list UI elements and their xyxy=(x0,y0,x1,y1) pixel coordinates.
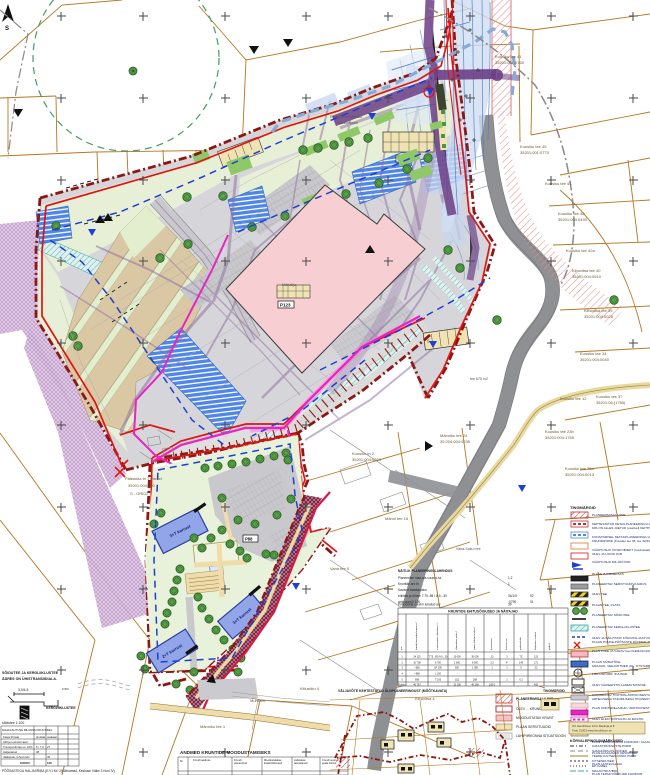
svg-text:1 055: 1 055 xyxy=(472,667,479,670)
svg-text:KÕRVALEPINGUD/MÄRKUSED: KÕRVALEPINGUD/MÄRKUSED xyxy=(570,738,623,743)
svg-text:Kuusiku tee 34: Kuusiku tee 34 xyxy=(580,351,607,356)
svg-text:parkimiskohti: parkimiskohti xyxy=(519,637,522,650)
svg-text:SÕIDUTEE JA KERGLIIKLUSTEE: SÕIDUTEE JA KERGLIIKLUSTEE xyxy=(2,670,59,675)
svg-text:LP 100: LP 100 xyxy=(434,667,442,670)
svg-text:tee 675 m2: tee 675 m2 xyxy=(470,377,488,381)
svg-text:maakasutuse sihtotstarve %: maakasutuse sihtotstarve % xyxy=(436,623,439,650)
svg-text:KRAAV/TRUUBID: KRAAV/TRUUBID xyxy=(592,769,618,773)
svg-text:Kuusiku tee 12: Kuusiku tee 12 xyxy=(560,396,587,401)
svg-text:PLANEERIMISALA PIIR: PLANEERIMISALA PIIR xyxy=(592,513,626,517)
svg-text:Kuusiku tee 76a: Kuusiku tee 76a xyxy=(565,466,594,471)
svg-text:Prihoonete suurim lubatud arv: Prihoonete suurim lubatud arv xyxy=(398,603,441,607)
svg-text:1: 1 xyxy=(508,582,510,586)
svg-text:PLANEERITAV SERVITUUDIVAJADUS: PLANEERITAV SERVITUUDIVAJADUS xyxy=(592,582,646,586)
svg-text:tasutatavad: tasutatavad xyxy=(294,761,308,765)
svg-text:MIS ON ALLES JÄETUD (osaliselt: MIS ON ALLES JÄETUD (osaliselt KEHTIV) xyxy=(592,526,650,530)
svg-text:1,2: 1,2 xyxy=(508,576,513,580)
svg-text:171: 171 xyxy=(534,662,539,665)
svg-text:30 000: 30 000 xyxy=(471,656,479,659)
svg-text:8 900: 8 900 xyxy=(472,662,479,665)
svg-text:Kokku: Kokku xyxy=(399,684,406,687)
svg-text:13 600: 13 600 xyxy=(453,656,461,659)
svg-text:Kuusiku tee 3?: Kuusiku tee 3? xyxy=(596,394,623,399)
svg-text:Killustiku 4: Killustiku 4 xyxy=(300,686,320,691)
svg-text:PLAN PIIRE JA VÄRAV (ka OLEMAS: PLAN PIIRE JA VÄRAV (ka OLEMASOLEV) xyxy=(592,649,650,653)
svg-text:Kuusiku tee 44: Kuusiku tee 44 xyxy=(545,181,572,186)
svg-text:39: 39 xyxy=(508,603,512,607)
svg-text:Nr: Nr xyxy=(180,759,183,763)
svg-text:Krundi aadress: Krundi aadress xyxy=(193,758,211,762)
svg-text:35201:004:0263: 35201:004:0263 xyxy=(352,457,382,462)
svg-text:ehitusalune pind m²: ehitusalune pind m² xyxy=(455,631,458,650)
svg-text:Kuusiku tee 42a: Kuusiku tee 42a xyxy=(566,248,595,253)
svg-text:PLAAN SERVITUUDID: PLAAN SERVITUUDID xyxy=(516,725,552,729)
svg-text:OLEV VÄIKEEHITIS LAMMUTATAKSE: OLEV VÄIKEEHITIS LAMMUTATAKSE xyxy=(592,683,646,687)
svg-text:Kuusiku tee 23b: Kuusiku tee 23b xyxy=(545,429,574,434)
svg-text:OLEV ELEKTRIÕHULIIN JA MASTID: OLEV ELEKTRIÕHULIIN JA MASTID xyxy=(592,716,644,721)
svg-text:peale liitmist: peale liitmist xyxy=(322,761,337,765)
svg-text:OÜ Hendrikson & Ko Raekoja pl: OÜ Hendrikson & Ko Raekoja pl 8 xyxy=(572,724,615,728)
svg-text:38: 38 xyxy=(36,750,40,754)
svg-text:PÕÕSASTEGA HALJASRIBA (E:V1 M:: PÕÕSASTEGA HALJASRIBA (E:V1 M:I 2)hõlmam… xyxy=(2,768,115,773)
svg-text:35201:004:0025: 35201:004:0025 xyxy=(584,314,614,319)
svg-text:35201:06:(1765): 35201:06:(1765) xyxy=(596,400,626,405)
svg-text:NÄITLIK PLANEERINGULAHENDUS: NÄITLIK PLANEERINGULAHENDUS xyxy=(398,569,452,573)
svg-text:TINGMÄRGID: TINGMÄRGID xyxy=(543,689,565,693)
svg-text:Planeeritav maa-ala suurus ha: Planeeritav maa-ala suurus ha xyxy=(398,576,441,580)
svg-text:Kuusiku tee 42: Kuusiku tee 42 xyxy=(558,211,585,216)
svg-text:46 787: 46 787 xyxy=(413,684,421,687)
svg-text:Kuusiku tee 41: Kuusiku tee 41 xyxy=(495,54,522,59)
svg-text:Kuusiku tn 2: Kuusiku tn 2 xyxy=(352,451,375,456)
svg-text:Haljastatud: Haljastatud xyxy=(3,750,17,754)
svg-text:KATASTRIÜKSUSTE PIIRID: KATASTRIÜKSUSTE PIIRID xyxy=(592,744,632,748)
svg-text:Männi tee 15: Männi tee 15 xyxy=(385,516,409,521)
svg-text:ehitiste ja ülmse 7.75..85 / Ä: ehitiste ja ülmse 7.75..85 / Ä.5...30 xyxy=(398,594,447,598)
svg-text:4*: 4* xyxy=(506,662,508,665)
svg-text:35201:004:0013: 35201:004:0013 xyxy=(565,472,595,477)
svg-text:KITSENDUSED: KITSENDUSED xyxy=(592,759,615,763)
svg-text:35201:004:0040: 35201:004:0040 xyxy=(580,357,610,362)
svg-text:128: 128 xyxy=(47,761,52,765)
svg-text:698: 698 xyxy=(415,679,420,682)
svg-text:OLEV TEE: OLEV TEE xyxy=(592,592,607,596)
svg-text:KRUNTIDE EHITUSÕIGUSED JA NÄIT: KRUNTIDE EHITUSÕIGUSED JA NÄITAJAD xyxy=(448,609,518,614)
svg-text:Vana tee 5: Vana tee 5 xyxy=(330,566,350,571)
svg-text:1 600: 1 600 xyxy=(454,662,461,665)
svg-text:Transpordimaa so. 10%: Transpordimaa so. 10% xyxy=(3,745,33,749)
svg-text:45: 45 xyxy=(47,755,51,759)
svg-text:5 / 7,0: 5 / 7,0 xyxy=(36,745,44,749)
svg-text:VÄÄRTUSLIK MILJÖÖ PIIR: VÄÄRTUSLIK MILJÖÖ PIIR xyxy=(592,560,631,564)
svg-text:Raudtee tn Männiku: Raudtee tn Männiku xyxy=(330,115,362,119)
svg-text:35201:001:0760: 35201:001:0760 xyxy=(495,60,525,65)
svg-text:katastriüksused: katastriüksused xyxy=(264,761,283,765)
svg-text:~580: ~580 xyxy=(414,667,420,670)
svg-text:Kavand maakasutus: Kavand maakasutus xyxy=(398,588,427,592)
svg-text:405: 405 xyxy=(534,684,539,687)
svg-text:suurim lubatud maht m³: suurim lubatud maht m³ xyxy=(473,627,476,650)
svg-text:34/1/5: 34/1/5 xyxy=(508,594,517,598)
svg-text:Tartu 51003 www.hendrikson.ee: Tartu 51003 www.hendrikson.ee xyxy=(572,729,612,733)
svg-text:OLEV JA LIKVID PIIR: OLEV JA LIKVID PIIR xyxy=(592,552,623,556)
svg-text:P88: P88 xyxy=(245,537,253,542)
svg-text:osakaal: osakaal xyxy=(47,735,57,739)
svg-text:123: 123 xyxy=(534,656,539,659)
svg-text:35:204:004:0235: 35:204:004:0235 xyxy=(440,439,471,444)
svg-text:35201:004:100: 35201:004:100 xyxy=(128,483,155,488)
svg-text:35201:004:0490: 35201:004:0490 xyxy=(558,217,588,222)
svg-text:PLANEERITAV SÕIDUTEE: PLANEERITAV SÕIDUTEE xyxy=(592,612,630,617)
svg-text:PLANEERITAV KERGLIIKLUSTEE: PLANEERITAV KERGLIIKLUSTEE xyxy=(592,625,640,629)
svg-text:Jäätspale, tehovundo: Jäätspale, tehovundo xyxy=(3,755,30,759)
svg-text:raudteejaam: raudteejaam xyxy=(338,121,358,125)
svg-text:40 168: 40 168 xyxy=(471,684,479,687)
svg-text:~898: ~898 xyxy=(414,673,420,676)
svg-text:sõidutee 1:100: sõidutee 1:100 xyxy=(2,721,24,725)
svg-text:pindala: pindala xyxy=(36,735,45,739)
svg-text:Kruntide arv tn: Kruntide arv tn xyxy=(398,582,419,586)
svg-text:TEEDE KAITSEVÖÖNDI PIIRID: TEEDE KAITSEVÖÖNDI PIIRID xyxy=(592,754,637,758)
svg-text:35201:001:0770: 35201:001:0770 xyxy=(520,150,550,155)
svg-text:Kibuvitsa tee 39: Kibuvitsa tee 39 xyxy=(584,308,613,313)
svg-text:ARHELISEMA TINGIMUSEGA HOONEST: ARHELISEMA TINGIMUSEGA HOONESTUSALA xyxy=(592,697,650,701)
svg-text:Pääsküla tn 7 Parcel: Pääsküla tn 7 Parcel xyxy=(125,476,162,481)
svg-text:Männiku tee 24: Männiku tee 24 xyxy=(440,433,468,438)
svg-text:ANDMED KRUNTIDE MOODUSTAMISEKS: ANDMED KRUNTIDE MOODUSTAMISEKS xyxy=(180,750,271,755)
svg-text:Kawa lõmala: Kawa lõmala xyxy=(3,735,19,739)
svg-text:92: 92 xyxy=(530,594,534,598)
svg-text:01: 01 xyxy=(530,600,534,604)
svg-text:EP. KABEL: EP. KABEL xyxy=(592,764,608,768)
svg-text:haljastuse osakaal: haljastuse osakaal xyxy=(534,631,537,650)
svg-text:P123: P123 xyxy=(280,303,291,308)
svg-text:268: 268 xyxy=(473,679,478,682)
svg-text:KOKKU: KOKKU xyxy=(20,761,30,765)
svg-text:VÄLJAVÕTE KEHTESTATUD ÜLDPLANE: VÄLJAVÕTE KEHTESTATUD ÜLDPLANEERINGUST (… xyxy=(338,688,447,693)
svg-text:KERGLIIKLUSTEE: KERGLIIKLUSTEE xyxy=(46,706,76,710)
svg-text:PLAAN JUURDEPÄÄS: PLAAN JUURDEPÄÄS xyxy=(592,572,624,576)
svg-text:Kibuvitsa tee 40: Kibuvitsa tee 40 xyxy=(572,268,601,273)
svg-text:L 100: L 100 xyxy=(435,673,442,676)
svg-text:LIIKLUSKORR. SUUNAD: LIIKLUSKORR. SUUNAD xyxy=(592,672,628,676)
svg-text:ÄRI ja tootmismaad: ÄRI ja tootmismaad xyxy=(3,740,28,744)
svg-text:2,5%: 2,5% xyxy=(62,687,69,691)
svg-text:Kuusiku tee 45: Kuusiku tee 45 xyxy=(520,144,547,149)
svg-text:15 108: 15 108 xyxy=(453,684,461,687)
svg-text:SAMAKÕRGUSJOONED: SAMAKÕRGUSJOONED xyxy=(592,748,628,753)
svg-text:6 700: 6 700 xyxy=(435,662,442,665)
svg-text:Mälivälja: Mälivälja xyxy=(282,283,296,287)
svg-text:1(2): 1(2) xyxy=(455,679,459,682)
svg-text:KRUNDIPIIRID (Kuusiku tee 35,: KRUNDIPIIRID (Kuusiku tee 35, tee 42/44) xyxy=(592,539,650,543)
svg-text:LÄHIPIIRKONNA SITUATSIOON: LÄHIPIIRKONNA SITUATSIOON xyxy=(516,734,566,738)
svg-text:T.75...85 /Ä.0...30: T.75...85 /Ä.0...30 xyxy=(429,656,448,659)
svg-text:PLAAN PUUDE-PÕÕSASTE RÜHMAD JA: PLAAN PUUDE-PÕÕSASTE RÜHMAD JA HEKID xyxy=(592,639,650,644)
svg-text:PLAAN TEE, PLATS: PLAAN TEE, PLATS xyxy=(592,603,620,607)
svg-text:34 115: 34 115 xyxy=(413,656,421,659)
svg-text:piirded: piirded xyxy=(548,643,551,650)
svg-text:korruselisus: korruselisus xyxy=(490,637,493,650)
svg-text:T 100: T 100 xyxy=(435,679,442,682)
svg-text:S - GRID2: S - GRID2 xyxy=(130,491,149,496)
svg-text:10 708: 10 708 xyxy=(413,662,421,665)
svg-text:35201:004:1765: 35201:004:1765 xyxy=(545,435,575,440)
svg-text:149: 149 xyxy=(519,662,524,665)
svg-text:TINGMÄRGID: TINGMÄRGID xyxy=(570,505,596,510)
svg-text:KRAAVID, VEEJUHTMED (OL. OTSTA: KRAAVID, VEEJUHTMED (OL. OTSTARBED) xyxy=(592,664,650,668)
svg-text:MAAKASUTUSE BILANSS KRUNTIDEL: MAAKASUTUSE BILANSS KRUNTIDEL xyxy=(2,728,53,732)
svg-text:S: S xyxy=(5,26,9,32)
svg-text:krundi planeeritud suurus m²: krundi planeeritud suurus m² xyxy=(415,622,418,650)
svg-text:650: 650 xyxy=(455,667,460,670)
svg-text:ÄÄRES ON ÜHISTRANSIIDIALA.: ÄÄRES ON ÜHISTRANSIIDIALA. xyxy=(2,676,57,681)
svg-text:3,0/4,5: 3,0/4,5 xyxy=(18,688,28,692)
svg-text:105 6: 105 6 xyxy=(489,684,496,687)
svg-text:planeeritud: planeeritud xyxy=(234,761,247,765)
svg-text:35201:004:0510: 35201:004:0510 xyxy=(572,274,602,279)
svg-text:TC: TC xyxy=(519,656,522,659)
svg-text:hoonete arv: hoonete arv xyxy=(505,638,508,650)
svg-text:Männiku tee 1: Männiku tee 1 xyxy=(200,724,226,729)
svg-text:27: 27 xyxy=(47,745,51,749)
svg-text:Vana-Saku mnt: Vana-Saku mnt xyxy=(456,547,481,551)
svg-text:PLAN KORTERELAMUD / ÄRIHOONEST: PLAN KORTERELAMUD / ÄRIHOONESTUSALA xyxy=(592,706,650,710)
svg-text:MOODUSTATAV KRUNT: MOODUSTATAV KRUNT xyxy=(516,716,554,720)
